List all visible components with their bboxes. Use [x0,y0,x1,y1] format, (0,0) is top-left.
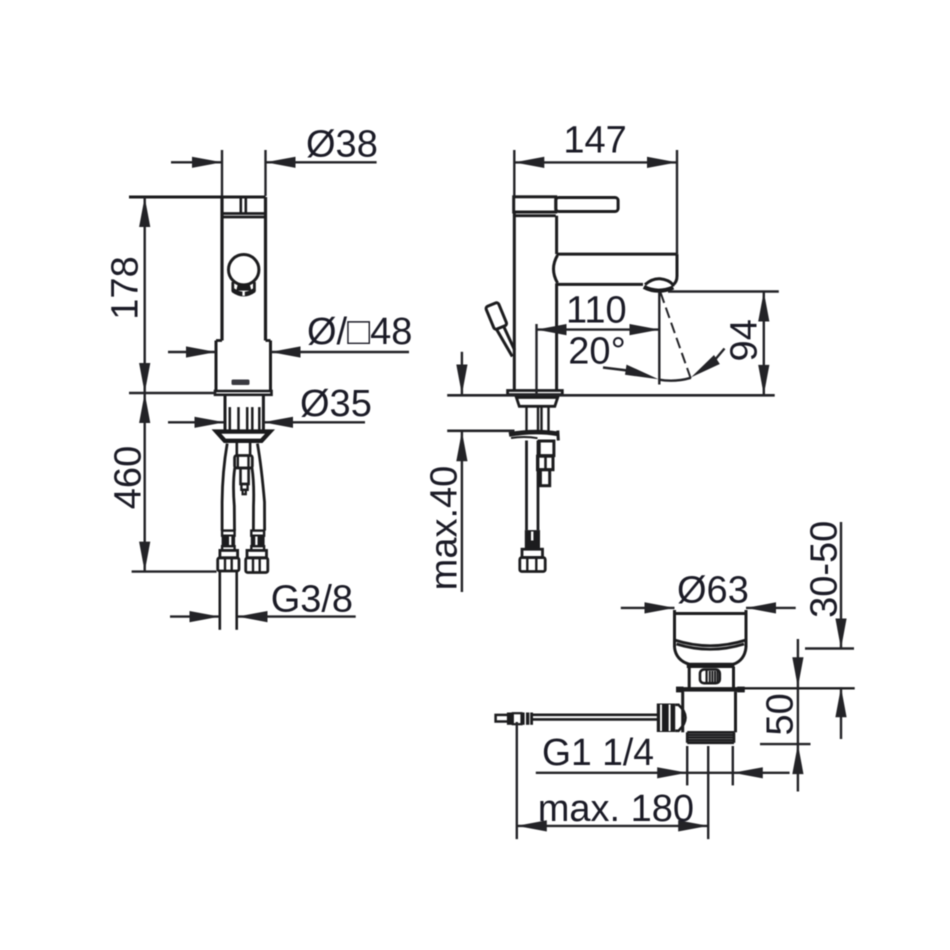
svg-text:50: 50 [760,693,802,735]
svg-text:G3/8: G3/8 [271,579,353,621]
svg-text:Ø35: Ø35 [300,383,372,425]
svg-text:110: 110 [566,289,627,331]
svg-text:max.40: max.40 [424,466,466,591]
svg-text:147: 147 [563,120,626,162]
svg-text:20°: 20° [568,331,625,373]
svg-text:94: 94 [724,319,766,361]
svg-text:Ø/□48: Ø/□48 [307,311,412,353]
svg-text:G1 1/4: G1 1/4 [542,732,654,774]
svg-text:178: 178 [105,256,147,319]
svg-text:460: 460 [108,446,150,509]
svg-text:Ø63: Ø63 [677,570,749,612]
svg-text:Ø38: Ø38 [306,124,378,166]
svg-text:max. 180: max. 180 [538,788,694,830]
svg-text:30-50: 30-50 [804,521,846,618]
